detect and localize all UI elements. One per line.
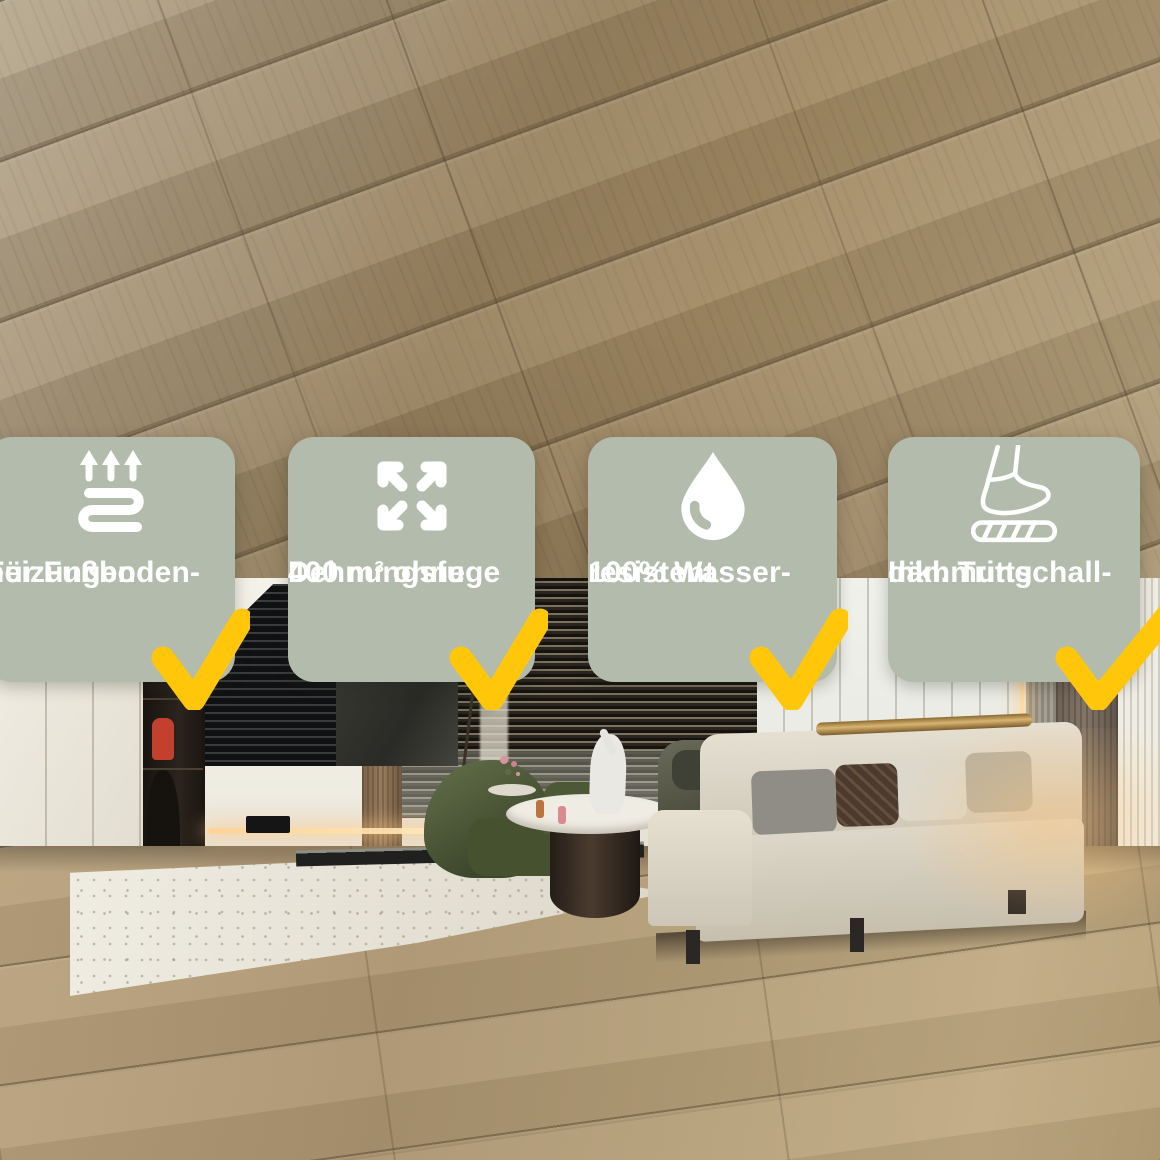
sofa-chaise xyxy=(648,810,752,926)
impact-sound-insulation-icon xyxy=(888,437,1140,555)
wall-light-glow xyxy=(890,728,1160,938)
water-drop-icon xyxy=(588,437,837,555)
flower-vase xyxy=(500,756,508,764)
sofa-leg xyxy=(850,918,864,952)
table-decor xyxy=(536,800,544,818)
product-image: Für Fußboden- heizungen 400 m³ ohne Dehn… xyxy=(0,0,1160,1160)
check-icon xyxy=(1054,600,1160,710)
check-icon xyxy=(448,600,548,710)
light-switches xyxy=(246,816,290,833)
underfloor-heating-icon xyxy=(0,437,235,555)
sofa-leg xyxy=(686,930,700,964)
badge-label-line2: heizungen xyxy=(0,554,136,592)
side-table xyxy=(488,784,536,796)
check-icon xyxy=(150,600,250,710)
badge-label-line2: resistent xyxy=(588,554,715,592)
sofa-cushion-gray xyxy=(751,769,837,836)
expand-arrows-icon xyxy=(288,437,535,555)
red-figurine xyxy=(152,718,174,760)
check-icon xyxy=(748,600,848,710)
badge-label-line2: dämmung xyxy=(888,554,1033,592)
badge-label-line2: Dehnungsfuge xyxy=(288,554,500,592)
niche-shelf xyxy=(143,768,203,770)
